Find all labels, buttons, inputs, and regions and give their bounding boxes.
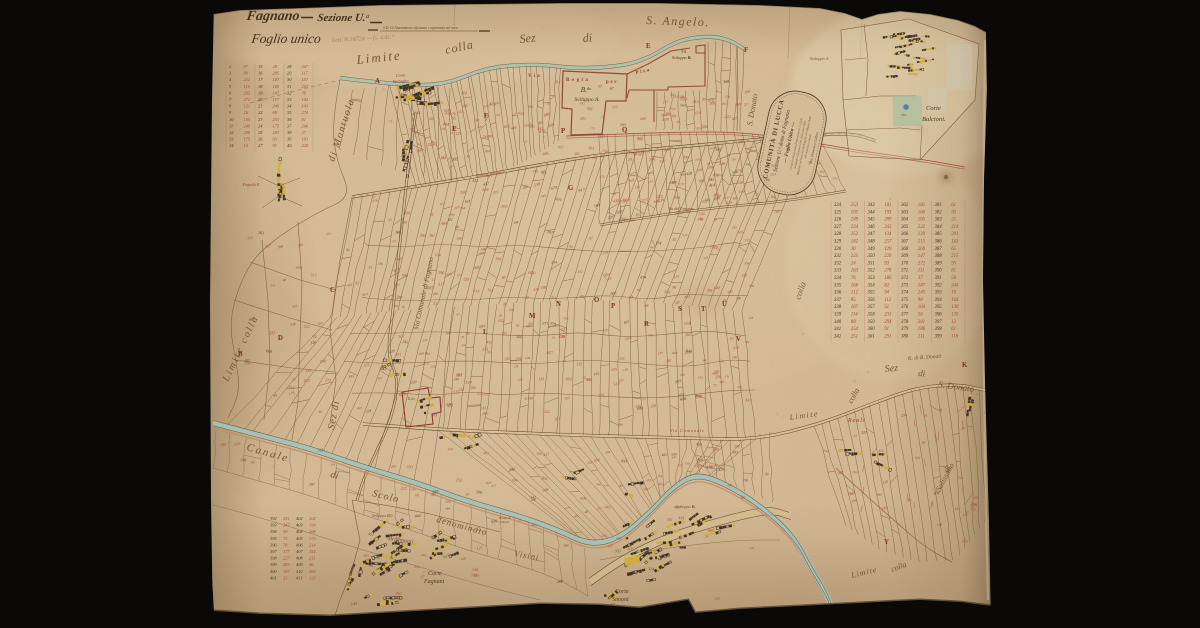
- svg-text:496: 496: [512, 478, 518, 482]
- svg-text:474: 474: [458, 110, 464, 115]
- svg-text:343: 343: [363, 554, 369, 558]
- svg-text:Sviluppo B.: Sviluppo B.: [672, 55, 692, 60]
- svg-text:607: 607: [377, 376, 383, 381]
- svg-text:387: 387: [935, 247, 943, 252]
- svg-text:220: 220: [741, 273, 747, 278]
- svg-text:K: K: [962, 362, 968, 369]
- svg-text:38: 38: [644, 303, 648, 308]
- svg-text:P: P: [561, 128, 565, 135]
- svg-text:428: 428: [402, 221, 408, 225]
- svg-text:134: 134: [309, 523, 316, 528]
- svg-text:54: 54: [465, 332, 470, 337]
- svg-text:207: 207: [302, 64, 309, 69]
- svg-text:143: 143: [351, 601, 358, 607]
- svg-text:269: 269: [918, 247, 926, 252]
- svg-text:257: 257: [884, 240, 892, 245]
- svg-text:552: 552: [612, 105, 618, 110]
- svg-text:299: 299: [410, 379, 417, 385]
- svg-text:328: 328: [834, 232, 842, 237]
- svg-text:99: 99: [702, 97, 706, 101]
- svg-text:113: 113: [440, 202, 445, 206]
- svg-text:81: 81: [302, 117, 306, 122]
- svg-text:Via: Via: [528, 74, 542, 79]
- svg-text:345: 345: [868, 218, 876, 223]
- svg-text:211: 211: [309, 556, 315, 561]
- svg-text:R: R: [644, 321, 649, 328]
- svg-text:143: 143: [302, 104, 309, 109]
- svg-text:di: di: [582, 30, 592, 45]
- svg-text:278: 278: [430, 365, 436, 369]
- svg-text:187: 187: [918, 283, 926, 288]
- svg-text:19: 19: [551, 336, 555, 340]
- svg-text:201: 201: [918, 320, 925, 325]
- svg-text:384: 384: [935, 225, 943, 230]
- svg-text:641: 641: [621, 458, 628, 464]
- svg-text:351: 351: [868, 261, 875, 266]
- svg-text:61: 61: [629, 295, 633, 300]
- svg-text:392: 392: [270, 516, 277, 521]
- svg-text:234: 234: [851, 225, 859, 230]
- svg-text:137: 137: [602, 149, 608, 153]
- svg-text:505: 505: [394, 304, 399, 308]
- svg-text:621: 621: [629, 178, 635, 183]
- svg-text:351: 351: [554, 417, 560, 422]
- svg-text:342: 342: [834, 334, 842, 339]
- svg-text:B: B: [238, 351, 243, 358]
- svg-text:660: 660: [713, 172, 719, 177]
- svg-text:98: 98: [918, 298, 923, 303]
- svg-text:E: E: [646, 43, 651, 50]
- svg-text:12: 12: [951, 320, 956, 325]
- svg-text:304: 304: [819, 170, 824, 174]
- svg-text:510: 510: [725, 95, 731, 100]
- svg-text:304: 304: [413, 565, 419, 570]
- svg-text:379: 379: [550, 321, 557, 327]
- svg-text:360: 360: [868, 327, 876, 332]
- svg-text:166: 166: [918, 210, 926, 215]
- svg-text:153: 153: [502, 331, 508, 335]
- svg-text:407: 407: [296, 549, 303, 554]
- svg-text:Corte: Corte: [396, 72, 406, 78]
- svg-text:207: 207: [641, 198, 647, 203]
- svg-text:626: 626: [580, 497, 586, 501]
- svg-text:175: 175: [273, 123, 280, 128]
- svg-text:183: 183: [708, 177, 714, 182]
- svg-text:65: 65: [452, 115, 456, 120]
- svg-text:540: 540: [447, 447, 453, 452]
- svg-text:64: 64: [658, 474, 662, 479]
- svg-text:541: 541: [714, 369, 720, 374]
- svg-text:376: 376: [901, 305, 909, 310]
- svg-text:56: 56: [918, 313, 923, 318]
- svg-text:686: 686: [266, 348, 272, 353]
- svg-text:502: 502: [745, 162, 751, 167]
- svg-text:566: 566: [563, 543, 569, 548]
- svg-text:73: 73: [388, 120, 392, 124]
- svg-text:232: 232: [244, 77, 251, 82]
- svg-text:393: 393: [935, 291, 943, 296]
- svg-text:428: 428: [592, 156, 598, 160]
- svg-text:434: 434: [326, 232, 331, 236]
- svg-text:141: 141: [414, 493, 420, 497]
- svg-text:344: 344: [868, 210, 876, 215]
- svg-text:406: 406: [296, 542, 303, 547]
- svg-text:351: 351: [907, 498, 913, 502]
- svg-text:88: 88: [672, 285, 676, 289]
- svg-text:655: 655: [504, 124, 510, 129]
- svg-text:T: T: [701, 306, 706, 313]
- svg-text:Balcioni.: Balcioni.: [922, 116, 946, 123]
- svg-text:513: 513: [648, 179, 654, 184]
- svg-text:234: 234: [435, 253, 441, 257]
- svg-text:662: 662: [915, 456, 920, 460]
- svg-text:238: 238: [650, 404, 656, 408]
- svg-text:324: 324: [834, 203, 842, 208]
- svg-text:596: 596: [744, 261, 749, 265]
- svg-text:76: 76: [401, 305, 405, 309]
- svg-text:191: 191: [330, 463, 335, 467]
- svg-text:248: 248: [737, 181, 743, 185]
- svg-text:407: 407: [684, 295, 690, 299]
- svg-text:561: 561: [719, 359, 725, 364]
- svg-text:399: 399: [270, 562, 277, 567]
- svg-text:391: 391: [935, 276, 942, 281]
- svg-text:158: 158: [456, 236, 462, 240]
- svg-text:670: 670: [695, 111, 701, 115]
- svg-text:630: 630: [620, 199, 626, 203]
- svg-text:558: 558: [670, 107, 675, 111]
- svg-text:66: 66: [675, 211, 679, 215]
- svg-text:280: 280: [470, 386, 476, 390]
- svg-text:285: 285: [273, 71, 280, 76]
- svg-text:Sez: Sez: [884, 363, 899, 375]
- svg-text:253: 253: [851, 203, 859, 208]
- svg-text:328: 328: [879, 449, 884, 453]
- svg-text:93: 93: [884, 261, 889, 266]
- svg-text:365: 365: [901, 225, 909, 230]
- svg-text:366: 366: [901, 232, 909, 237]
- svg-text:576: 576: [375, 556, 381, 560]
- svg-text:per: per: [606, 80, 618, 85]
- svg-text:315: 315: [744, 238, 750, 243]
- svg-text:437: 437: [491, 484, 497, 488]
- svg-text:372: 372: [901, 276, 909, 281]
- svg-text:227: 227: [283, 556, 290, 561]
- svg-text:di: di: [918, 368, 926, 378]
- svg-text:325: 325: [715, 597, 721, 601]
- svg-text:243: 243: [395, 256, 402, 261]
- svg-text:405: 405: [391, 464, 397, 469]
- svg-text:46: 46: [318, 410, 322, 414]
- svg-text:200: 200: [509, 308, 515, 312]
- svg-text:26: 26: [499, 313, 503, 317]
- svg-text:209: 209: [487, 133, 493, 138]
- svg-text:539: 539: [305, 368, 311, 373]
- svg-text:50: 50: [731, 157, 736, 162]
- svg-text:429: 429: [357, 406, 362, 410]
- svg-text:182: 182: [918, 203, 926, 208]
- svg-text:555: 555: [477, 392, 483, 396]
- svg-text:392: 392: [935, 283, 943, 288]
- svg-text:167: 167: [851, 305, 859, 310]
- svg-text:91: 91: [273, 143, 277, 148]
- svg-text:563: 563: [680, 103, 686, 107]
- svg-text:650: 650: [447, 272, 452, 276]
- svg-text:489: 489: [719, 380, 725, 385]
- svg-text:410: 410: [395, 591, 401, 596]
- svg-text:M: M: [529, 313, 536, 320]
- svg-text:200: 200: [302, 123, 309, 128]
- svg-text:596: 596: [648, 333, 653, 337]
- svg-text:396: 396: [270, 542, 277, 547]
- svg-text:113: 113: [576, 361, 582, 366]
- svg-text:679: 679: [423, 361, 429, 366]
- svg-text:145: 145: [587, 461, 593, 465]
- svg-text:366: 366: [765, 178, 771, 183]
- svg-text:490: 490: [474, 265, 481, 271]
- svg-text:600: 600: [296, 265, 303, 271]
- svg-text:208: 208: [309, 529, 316, 534]
- svg-text:168: 168: [851, 283, 859, 288]
- svg-text:611: 611: [465, 199, 471, 204]
- svg-text:30: 30: [851, 247, 856, 252]
- svg-text:187: 187: [283, 569, 290, 574]
- svg-text:65: 65: [951, 247, 956, 252]
- svg-text:201: 201: [951, 232, 958, 237]
- svg-text:243: 243: [884, 225, 892, 230]
- svg-text:389: 389: [935, 261, 943, 266]
- svg-text:541: 541: [537, 126, 544, 132]
- svg-text:372: 372: [832, 177, 837, 181]
- svg-text:362: 362: [429, 233, 435, 238]
- svg-text:399: 399: [935, 334, 943, 339]
- svg-text:367: 367: [901, 240, 909, 245]
- svg-text:598: 598: [441, 156, 446, 160]
- svg-text:578: 578: [372, 199, 378, 204]
- svg-text:615: 615: [473, 288, 480, 294]
- svg-text:348: 348: [868, 240, 876, 245]
- svg-text:125: 125: [387, 218, 392, 222]
- svg-text:330: 330: [403, 210, 410, 215]
- svg-text:162: 162: [557, 145, 563, 149]
- svg-text:Foglio unico: Foglio unico: [250, 31, 323, 46]
- svg-text:356: 356: [868, 298, 876, 303]
- svg-text:371: 371: [901, 269, 908, 274]
- svg-text:222: 222: [544, 410, 550, 414]
- svg-text:443: 443: [727, 483, 733, 487]
- svg-text:232: 232: [918, 225, 926, 230]
- svg-text:81: 81: [951, 269, 956, 274]
- svg-text:182: 182: [851, 240, 859, 245]
- svg-text:558: 558: [427, 142, 434, 147]
- svg-text:F: F: [744, 47, 748, 54]
- svg-text:88: 88: [851, 320, 856, 325]
- svg-text:85: 85: [851, 298, 856, 303]
- svg-text:415: 415: [432, 413, 438, 417]
- svg-text:337: 337: [834, 298, 842, 303]
- svg-text:355: 355: [615, 548, 621, 553]
- svg-text:578: 578: [708, 98, 714, 103]
- svg-text:566: 566: [528, 104, 534, 109]
- svg-text:C: C: [330, 287, 335, 294]
- svg-text:99: 99: [765, 472, 769, 476]
- svg-text:185: 185: [273, 84, 280, 89]
- svg-text:511: 511: [599, 133, 605, 138]
- svg-text:G: G: [568, 185, 574, 192]
- svg-text:267: 267: [302, 84, 309, 89]
- svg-text:516: 516: [516, 357, 522, 361]
- svg-text:510: 510: [270, 284, 275, 288]
- svg-text:278: 278: [884, 269, 892, 274]
- svg-text:348: 348: [241, 458, 247, 463]
- svg-text:377: 377: [901, 313, 909, 318]
- svg-text:290: 290: [736, 296, 741, 300]
- svg-text:410: 410: [616, 536, 622, 540]
- svg-text:347: 347: [868, 232, 876, 237]
- svg-text:635: 635: [611, 367, 617, 372]
- svg-text:Fagnani: Fagnani: [423, 579, 445, 585]
- svg-text:16: 16: [676, 120, 680, 124]
- svg-text:21: 21: [853, 434, 857, 438]
- svg-text:91: 91: [884, 327, 889, 332]
- svg-text:311: 311: [318, 447, 324, 452]
- svg-text:Sviluppo A.: Sviluppo A.: [810, 56, 829, 61]
- svg-text:78: 78: [384, 569, 388, 574]
- svg-text:402: 402: [296, 516, 303, 521]
- svg-text:118: 118: [538, 376, 544, 381]
- svg-text:63: 63: [922, 441, 926, 445]
- svg-text:214: 214: [309, 542, 316, 547]
- svg-text:589: 589: [715, 146, 722, 152]
- svg-text:378: 378: [901, 320, 909, 325]
- svg-text:258: 258: [697, 217, 703, 222]
- svg-text:112: 112: [884, 298, 891, 303]
- svg-text:316: 316: [623, 150, 629, 154]
- svg-text:368: 368: [901, 247, 909, 252]
- svg-text:213: 213: [561, 328, 567, 332]
- svg-text:F: F: [484, 113, 488, 120]
- svg-text:385: 385: [935, 232, 943, 237]
- svg-text:471: 471: [599, 175, 605, 180]
- svg-text:361: 361: [541, 475, 548, 481]
- svg-text:363: 363: [588, 145, 595, 151]
- svg-text:62: 62: [497, 113, 501, 117]
- svg-text:380: 380: [901, 334, 909, 339]
- svg-text:32: 32: [346, 248, 350, 252]
- svg-text:622: 622: [656, 194, 664, 199]
- svg-text:117: 117: [273, 97, 280, 102]
- svg-text:401: 401: [365, 557, 370, 561]
- svg-text:105: 105: [244, 117, 251, 122]
- svg-text:685: 685: [611, 291, 617, 295]
- svg-text:315: 315: [483, 392, 489, 397]
- svg-text:346: 346: [868, 225, 876, 230]
- svg-text:336: 336: [834, 291, 842, 296]
- svg-text:163: 163: [851, 269, 859, 274]
- svg-text:54: 54: [612, 192, 616, 196]
- svg-text:478: 478: [477, 125, 482, 129]
- svg-text:351: 351: [901, 113, 906, 117]
- svg-text:405: 405: [429, 117, 435, 121]
- svg-text:335: 335: [712, 245, 719, 251]
- svg-text:261: 261: [258, 230, 265, 236]
- svg-text:19: 19: [466, 154, 470, 158]
- svg-text:331: 331: [745, 397, 752, 403]
- svg-text:400: 400: [531, 523, 537, 527]
- svg-text:11: 11: [229, 123, 233, 128]
- svg-text:Sezione U.a: Sezione U.a: [317, 12, 371, 24]
- svg-text:693: 693: [629, 219, 635, 223]
- svg-text:585: 585: [666, 518, 672, 522]
- svg-text:691: 691: [654, 199, 660, 204]
- svg-text:504: 504: [536, 451, 542, 456]
- svg-text:174: 174: [655, 240, 661, 245]
- svg-text:620: 620: [444, 108, 451, 113]
- svg-text:369: 369: [901, 254, 909, 259]
- svg-text:212: 212: [851, 291, 859, 296]
- svg-text:530: 530: [699, 211, 705, 216]
- svg-text:19: 19: [729, 337, 733, 341]
- svg-text:327: 327: [834, 225, 842, 230]
- svg-text:373: 373: [901, 283, 909, 288]
- svg-text:239: 239: [396, 295, 402, 299]
- svg-text:234: 234: [901, 413, 907, 417]
- svg-text:172: 172: [309, 536, 316, 541]
- svg-text:401: 401: [270, 575, 277, 580]
- svg-text:186: 186: [918, 327, 926, 332]
- svg-text:45: 45: [923, 413, 927, 417]
- svg-text:622: 622: [498, 318, 504, 324]
- svg-text:111: 111: [918, 269, 924, 274]
- svg-text:484: 484: [441, 221, 447, 226]
- svg-text:456: 456: [603, 328, 609, 333]
- svg-text:405: 405: [296, 536, 303, 541]
- svg-text:627: 627: [672, 351, 677, 355]
- svg-text:162: 162: [303, 378, 310, 384]
- svg-text:660: 660: [708, 528, 714, 533]
- svg-text:193: 193: [302, 137, 309, 142]
- svg-text:247: 247: [283, 523, 290, 528]
- svg-text:157: 157: [302, 77, 309, 82]
- svg-text:408: 408: [296, 556, 303, 561]
- svg-text:105: 105: [851, 210, 859, 215]
- svg-text:292: 292: [244, 90, 251, 95]
- svg-text:444: 444: [415, 513, 421, 518]
- svg-text:542: 542: [402, 340, 408, 345]
- svg-text:289: 289: [884, 218, 892, 223]
- svg-text:291: 291: [884, 334, 891, 339]
- svg-text:Regia: Regia: [566, 78, 590, 83]
- svg-text:253: 253: [273, 117, 280, 122]
- svg-text:311: 311: [395, 351, 401, 356]
- svg-text:271: 271: [325, 377, 332, 383]
- svg-text:39: 39: [713, 218, 717, 222]
- svg-text:T.S.: T.S.: [681, 49, 687, 54]
- svg-text:402: 402: [486, 339, 492, 344]
- svg-text:147: 147: [918, 254, 926, 259]
- svg-text:350: 350: [460, 189, 467, 194]
- svg-text:163: 163: [951, 240, 959, 245]
- svg-text:254: 254: [851, 327, 859, 332]
- svg-text:96: 96: [516, 324, 520, 328]
- svg-text:121: 121: [678, 516, 684, 520]
- svg-text:321: 321: [861, 430, 867, 435]
- svg-text:O: O: [594, 297, 599, 304]
- svg-text:140: 140: [713, 285, 720, 291]
- svg-text:561: 561: [454, 377, 460, 382]
- svg-text:470: 470: [482, 347, 488, 352]
- svg-text:214: 214: [673, 274, 679, 279]
